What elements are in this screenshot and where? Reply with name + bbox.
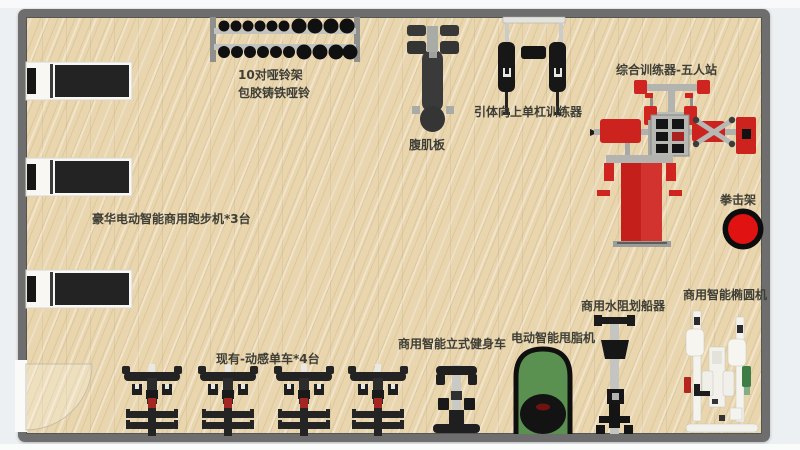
- label-boxing-rack: 拳击架: [720, 191, 756, 209]
- spin-bike: [198, 364, 258, 436]
- label-fat-shaker: 电动智能甩脂机: [511, 329, 595, 347]
- label-multi-station: 综合训练器-五人站: [616, 61, 717, 79]
- spin-bike: [122, 364, 182, 436]
- spin-bike: [348, 364, 408, 436]
- dumbbell-rack-graphic: [210, 17, 360, 62]
- boxing-rack-graphic: [723, 209, 764, 250]
- treadmill: [26, 158, 132, 196]
- label-upright-bike: 商用智能立式健身车: [398, 335, 506, 353]
- label-rower: 商用水阻划船器: [581, 297, 665, 315]
- ab-board-graphic: [407, 25, 459, 132]
- label-pullup-trainer: 引体向上单杠训练器: [474, 103, 582, 121]
- gym-floor-plan: 10对哑铃架 包胶铸铁哑铃 腹肌板 引体向上单杠训练器 综合训练器-五人站 拳击…: [0, 0, 800, 450]
- label-dumbbell-rack-line1: 10对哑铃架: [238, 66, 310, 84]
- upright-bike-graphic: [433, 365, 480, 433]
- label-dumbbell-rack-line2: 包胶铸铁哑铃: [238, 84, 310, 102]
- rower-graphic: [594, 315, 635, 434]
- label-elliptical: 商用智能椭圆机: [683, 286, 767, 304]
- label-spin-bikes: 现有-动感单车*4台: [216, 350, 320, 368]
- spin-bike: [274, 364, 334, 436]
- label-dumbbell-rack: 10对哑铃架 包胶铸铁哑铃: [238, 66, 310, 102]
- pullup-trainer-graphic: [498, 17, 566, 115]
- elliptical-graphic: [684, 311, 758, 432]
- outside-area-bottom: [0, 444, 800, 450]
- label-ab-board: 腹肌板: [409, 136, 445, 154]
- treadmill: [26, 62, 132, 100]
- treadmill: [26, 270, 132, 308]
- label-treadmills: 豪华电动智能商用跑步机*3台: [92, 210, 251, 228]
- door: [15, 360, 92, 432]
- fat-shaker-graphic: [516, 349, 570, 434]
